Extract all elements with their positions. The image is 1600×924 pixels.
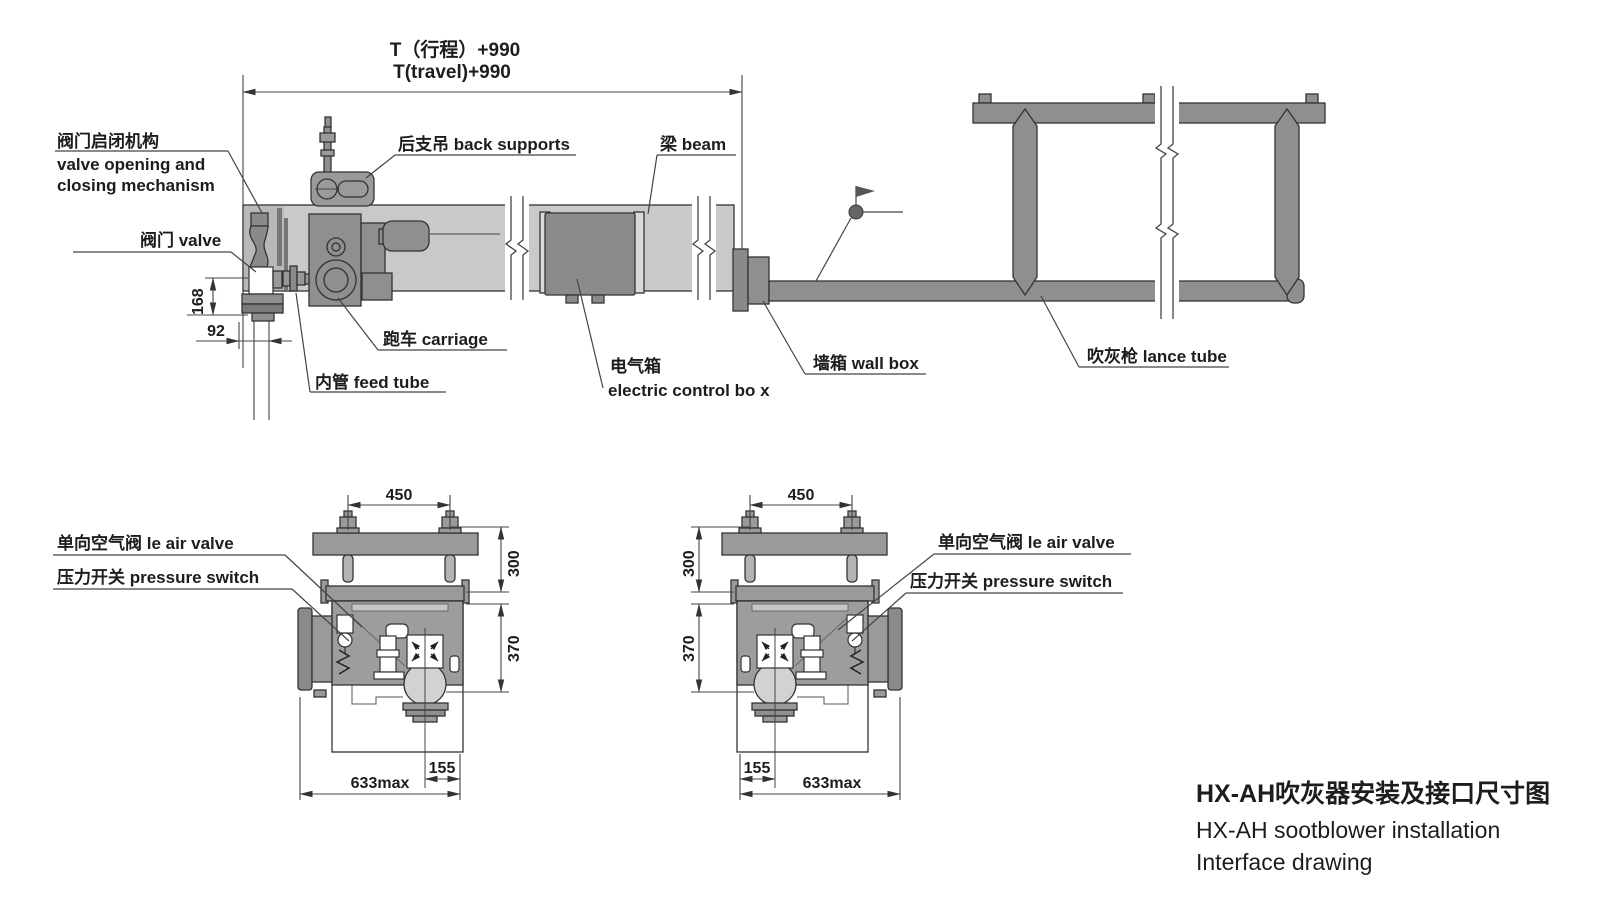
drawing-canvas: T（行程）+990 T(travel)+990 [0,0,1600,924]
dim-valve-height: 168 [187,278,248,315]
label-back-supports: 后支吊 back supports [398,134,570,154]
dim-450-left: 450 [386,487,413,504]
dim-370-right: 370 [681,635,698,662]
lance-tube [769,279,1304,303]
label-valve: 阀门 valve [140,230,221,250]
label-wall-box: 墙箱 wall box [813,353,919,373]
label-valve-mechanism-zh: 阀门启闭机构 [57,131,159,151]
valve-flange [242,294,283,321]
drawing-title-en1: HX-AH sootblower installation [1196,817,1500,843]
drawing-title-zh: HX-AH吹灰器安装及接口尺寸图 [1196,779,1550,808]
back-support-bracket [311,117,374,206]
hanger-post-left [1013,109,1037,295]
label-electric-box-zh: 电气箱 [610,356,661,376]
feed-tube [254,321,269,420]
label-feed-tube: 内管 feed tube [315,372,429,392]
dim-633-left: 633max [351,775,410,792]
dim-450-right: 450 [788,487,815,504]
dim-300-right: 300 [681,550,698,577]
wall-hanger-frame [973,94,1325,295]
travel-dim-en: T(travel)+990 [393,62,511,83]
drawing-title-en2: Interface drawing [1196,849,1372,875]
label-air-valve-right: 单向空气阀 le air valve [938,532,1115,552]
valve-body [249,267,273,294]
label-carriage: 跑车 carriage [383,329,488,349]
dim-92: 92 [207,323,225,340]
label-beam: 梁 beam [659,134,726,154]
dim-300-left: 300 [506,550,523,577]
main-view: T（行程）+990 T(travel)+990 [55,38,1325,420]
dim-168: 168 [190,288,207,315]
travel-dim-zh: T（行程）+990 [390,38,520,61]
electric-control-box [540,212,644,303]
label-pressure-switch-right: 压力开关 pressure switch [910,571,1112,591]
label-lance-tube: 吹灰枪 lance tube [1087,346,1227,366]
flag-marker-icon [816,186,903,281]
label-pressure-switch-left: 压力开关 pressure switch [57,567,259,587]
section-view-right: 450 300 370 155 633max 单向空气阀 le air valv… [681,487,1131,800]
hanger-post-right [1275,109,1299,295]
dim-633-right: 633max [803,775,862,792]
sootblower-drawing: T（行程）+990 T(travel)+990 [0,0,1600,924]
label-air-valve-left: 单向空气阀 le air valve [57,533,234,553]
section-view-left: 450 300 370 155 633max 单向空气阀 le air valv… [53,487,523,800]
dim-155-right: 155 [744,760,771,777]
carriage-motor [383,221,429,251]
label-electric-box-en: electric control bo x [608,381,770,400]
title-block: HX-AH吹灰器安装及接口尺寸图 HX-AH sootblower instal… [1196,779,1550,875]
dim-155-left: 155 [429,760,456,777]
label-valve-mechanism-en1: valve opening and [57,155,205,174]
dim-370-left: 370 [506,635,523,662]
label-valve-mechanism-en2: closing mechanism [57,176,215,195]
dim-feed-tube-offset: 92 [196,322,292,349]
